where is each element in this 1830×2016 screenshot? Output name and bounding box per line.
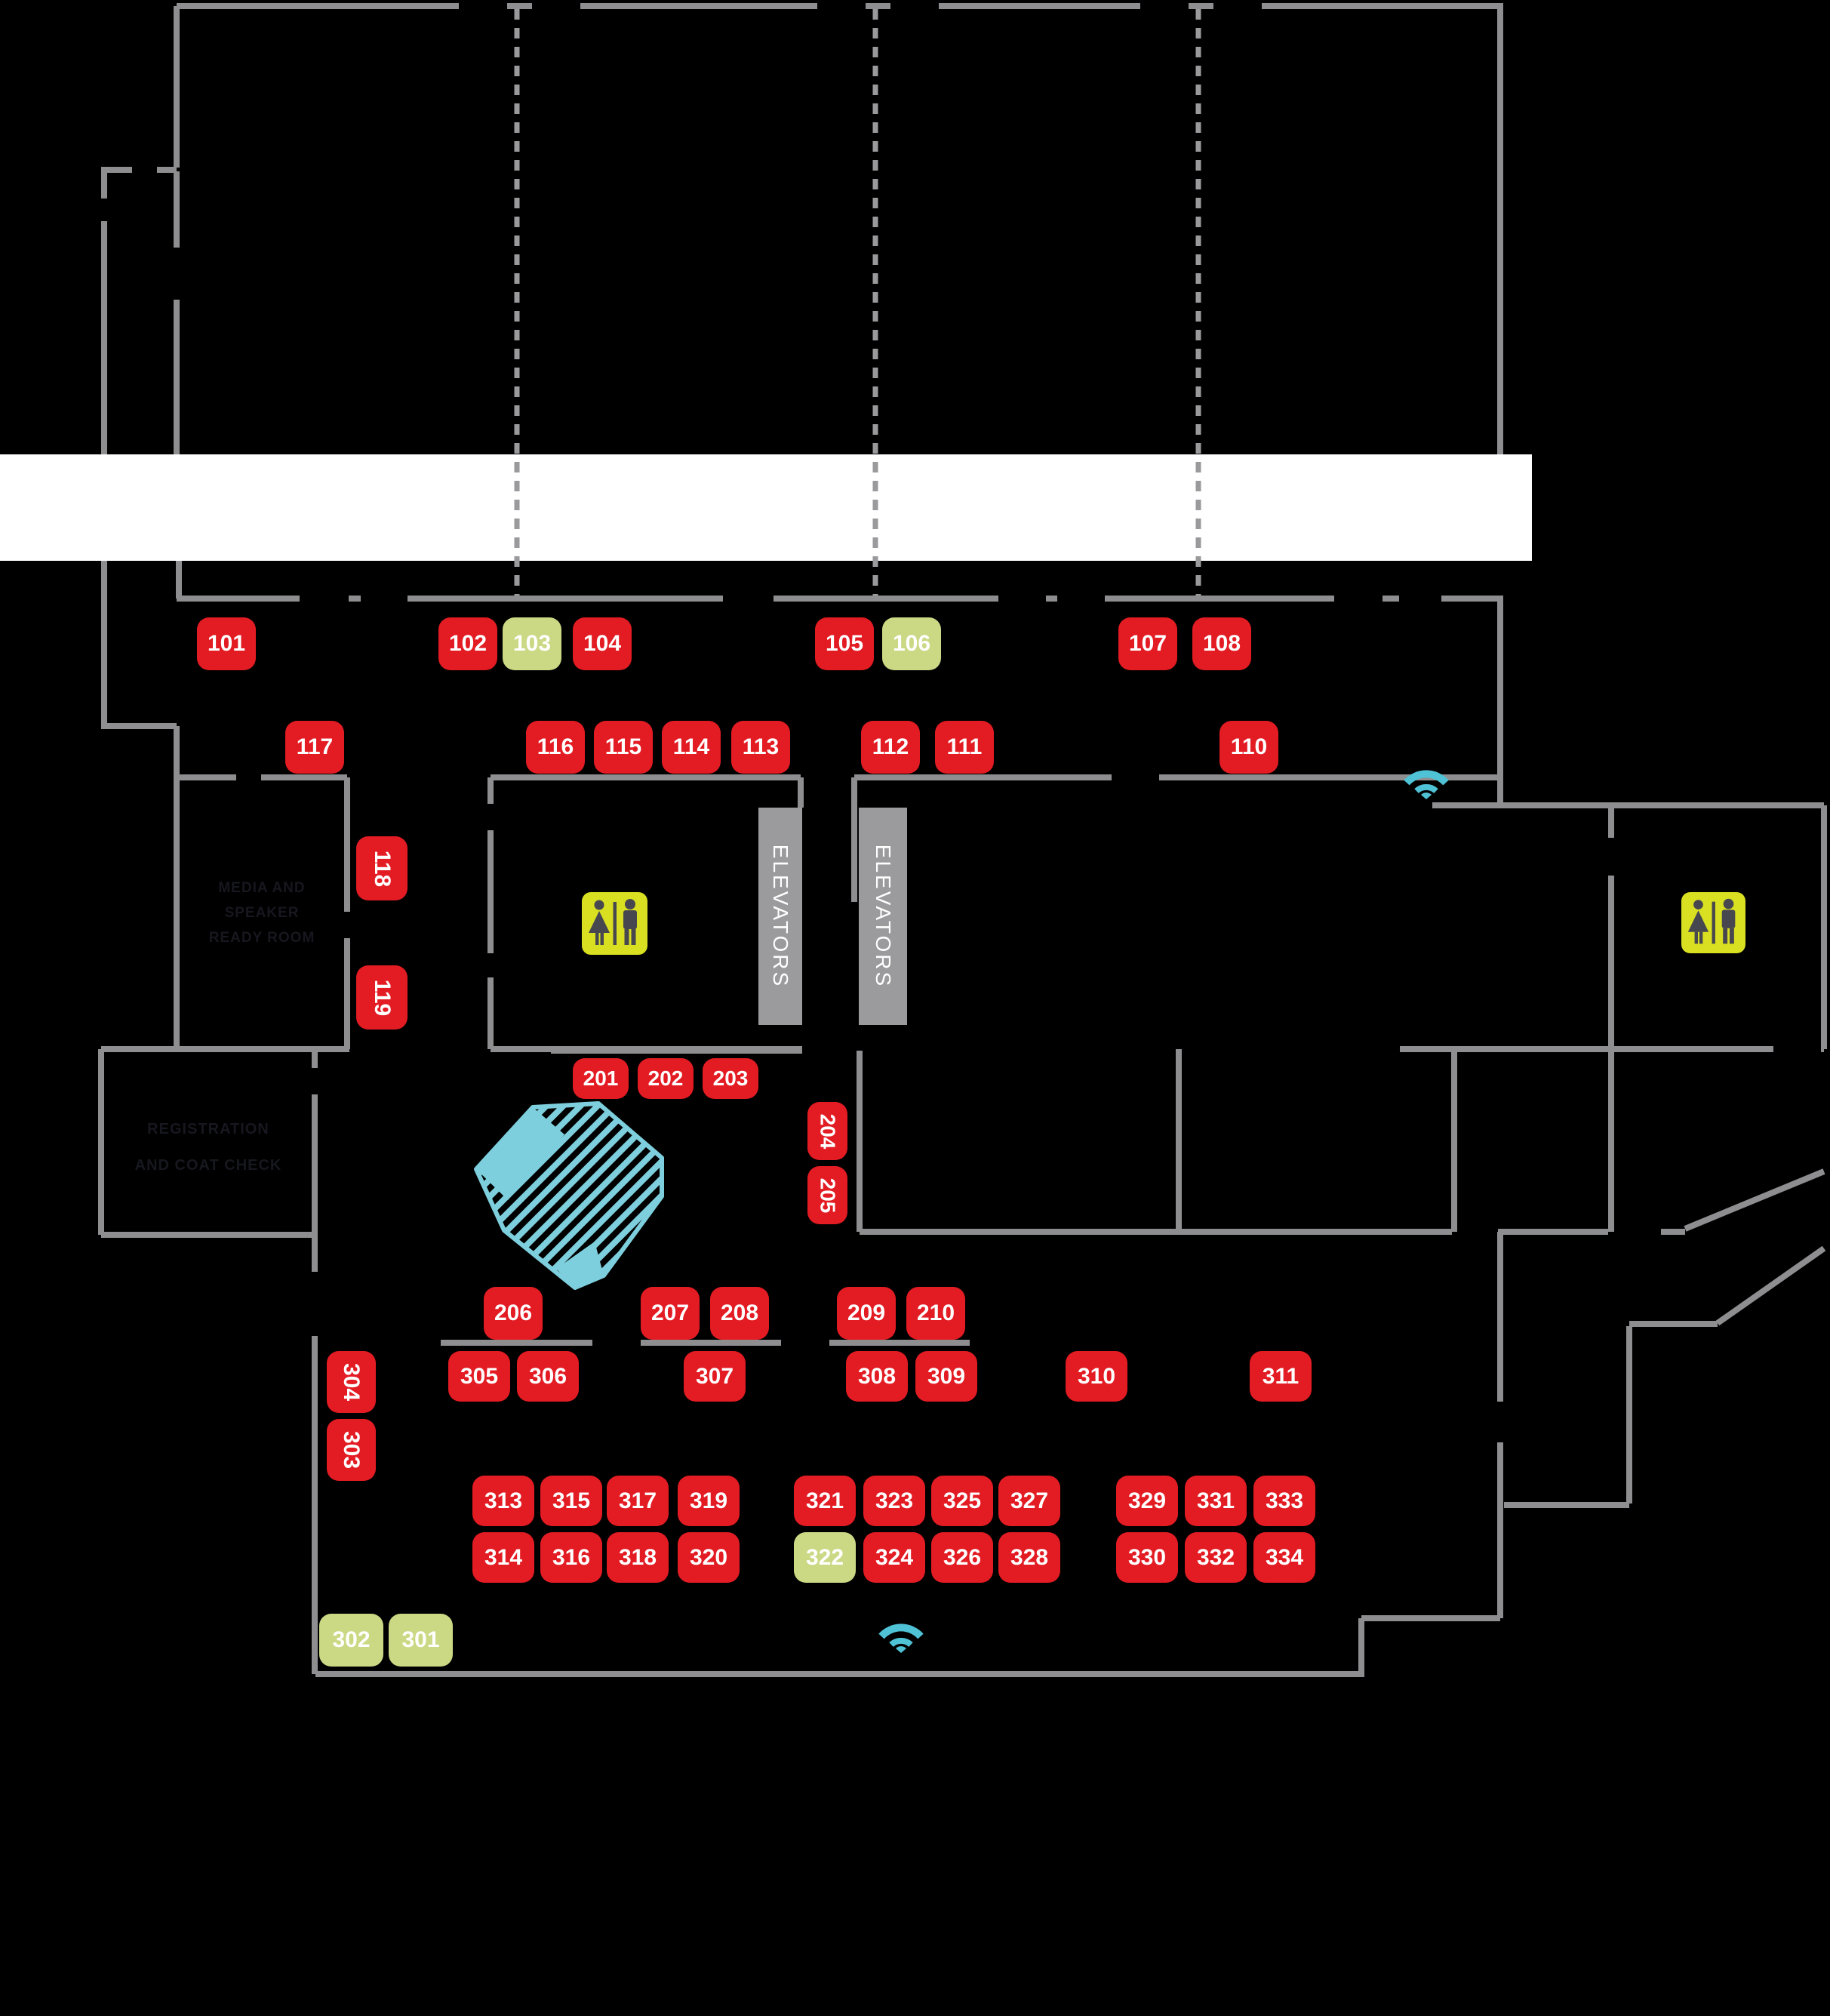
booth-329[interactable]: 329 xyxy=(1116,1476,1178,1526)
booth-307[interactable]: 307 xyxy=(684,1351,746,1402)
floor-plan-map: ELEVATORS ELEVATORS MEDIA ANDSPEAKERREAD… xyxy=(0,0,1830,2016)
booth-111[interactable]: 111 xyxy=(935,721,994,774)
booth-324[interactable]: 324 xyxy=(863,1532,925,1583)
booth-113[interactable]: 113 xyxy=(731,721,790,774)
booth-326[interactable]: 326 xyxy=(931,1532,993,1583)
booth-301[interactable]: 301 xyxy=(389,1614,453,1667)
booth-317[interactable]: 317 xyxy=(607,1476,669,1526)
wifi-icon xyxy=(1401,763,1451,799)
booth-203[interactable]: 203 xyxy=(703,1058,758,1099)
elevator-shaft-right: ELEVATORS xyxy=(859,808,907,1025)
booth-306[interactable]: 306 xyxy=(517,1351,579,1402)
booth-116[interactable]: 116 xyxy=(526,721,585,774)
wifi-icon xyxy=(876,1617,926,1653)
booth-118[interactable]: 118 xyxy=(356,836,408,900)
booth-318[interactable]: 318 xyxy=(607,1532,669,1583)
booth-320[interactable]: 320 xyxy=(678,1532,740,1583)
booth-313[interactable]: 313 xyxy=(472,1476,534,1526)
booth-112[interactable]: 112 xyxy=(861,721,920,774)
booth-119[interactable]: 119 xyxy=(356,965,408,1030)
booth-330[interactable]: 330 xyxy=(1116,1532,1178,1583)
booth-319[interactable]: 319 xyxy=(678,1476,740,1526)
booth-102[interactable]: 102 xyxy=(438,617,497,670)
booth-327[interactable]: 327 xyxy=(998,1476,1060,1526)
booth-205[interactable]: 205 xyxy=(807,1166,847,1224)
booth-332[interactable]: 332 xyxy=(1185,1532,1247,1583)
booth-303[interactable]: 303 xyxy=(327,1419,376,1481)
booth-104[interactable]: 104 xyxy=(573,617,632,670)
booth-328[interactable]: 328 xyxy=(998,1532,1060,1583)
booth-325[interactable]: 325 xyxy=(931,1476,993,1526)
escalator xyxy=(476,1103,662,1288)
booth-207[interactable]: 207 xyxy=(641,1287,700,1340)
elevator-label: ELEVATORS xyxy=(871,845,895,988)
booth-334[interactable]: 334 xyxy=(1253,1532,1315,1583)
elevator-label: ELEVATORS xyxy=(768,845,792,988)
media-speaker-ready-room-label: MEDIA ANDSPEAKERREADY ROOM xyxy=(171,876,352,950)
booth-108[interactable]: 108 xyxy=(1192,617,1251,670)
booth-117[interactable]: 117 xyxy=(285,721,344,774)
booth-201[interactable]: 201 xyxy=(573,1058,629,1099)
booth-107[interactable]: 107 xyxy=(1118,617,1177,670)
booth-311[interactable]: 311 xyxy=(1250,1351,1312,1402)
corridor-highlight-band xyxy=(0,454,1532,561)
booth-110[interactable]: 110 xyxy=(1219,721,1278,774)
booth-202[interactable]: 202 xyxy=(638,1058,694,1099)
booth-115[interactable]: 115 xyxy=(594,721,653,774)
restroom-icon xyxy=(1681,891,1745,955)
booth-106[interactable]: 106 xyxy=(882,617,941,670)
booth-206[interactable]: 206 xyxy=(484,1287,543,1340)
walls-layer xyxy=(0,0,1830,2016)
booth-208[interactable]: 208 xyxy=(710,1287,769,1340)
booth-310[interactable]: 310 xyxy=(1066,1351,1127,1402)
booth-308[interactable]: 308 xyxy=(846,1351,908,1402)
booth-323[interactable]: 323 xyxy=(863,1476,925,1526)
registration-coat-check-label: REGISTRATIONAND COAT CHECK xyxy=(95,1111,321,1183)
booth-331[interactable]: 331 xyxy=(1185,1476,1247,1526)
booth-103[interactable]: 103 xyxy=(503,617,561,670)
booth-105[interactable]: 105 xyxy=(815,617,874,670)
restroom-icon xyxy=(582,892,647,955)
booth-333[interactable]: 333 xyxy=(1253,1476,1315,1526)
booth-304[interactable]: 304 xyxy=(327,1351,376,1413)
booth-309[interactable]: 309 xyxy=(915,1351,977,1402)
booth-316[interactable]: 316 xyxy=(540,1532,602,1583)
booth-101[interactable]: 101 xyxy=(197,617,256,670)
booth-204[interactable]: 204 xyxy=(807,1102,847,1160)
booth-322[interactable]: 322 xyxy=(794,1532,856,1583)
booth-314[interactable]: 314 xyxy=(472,1532,534,1583)
booth-114[interactable]: 114 xyxy=(662,721,721,774)
booth-321[interactable]: 321 xyxy=(794,1476,856,1526)
booth-302[interactable]: 302 xyxy=(319,1614,383,1667)
booth-210[interactable]: 210 xyxy=(906,1287,965,1340)
elevator-shaft-left: ELEVATORS xyxy=(758,808,802,1025)
booth-305[interactable]: 305 xyxy=(448,1351,510,1402)
booth-315[interactable]: 315 xyxy=(540,1476,602,1526)
booth-209[interactable]: 209 xyxy=(837,1287,896,1340)
